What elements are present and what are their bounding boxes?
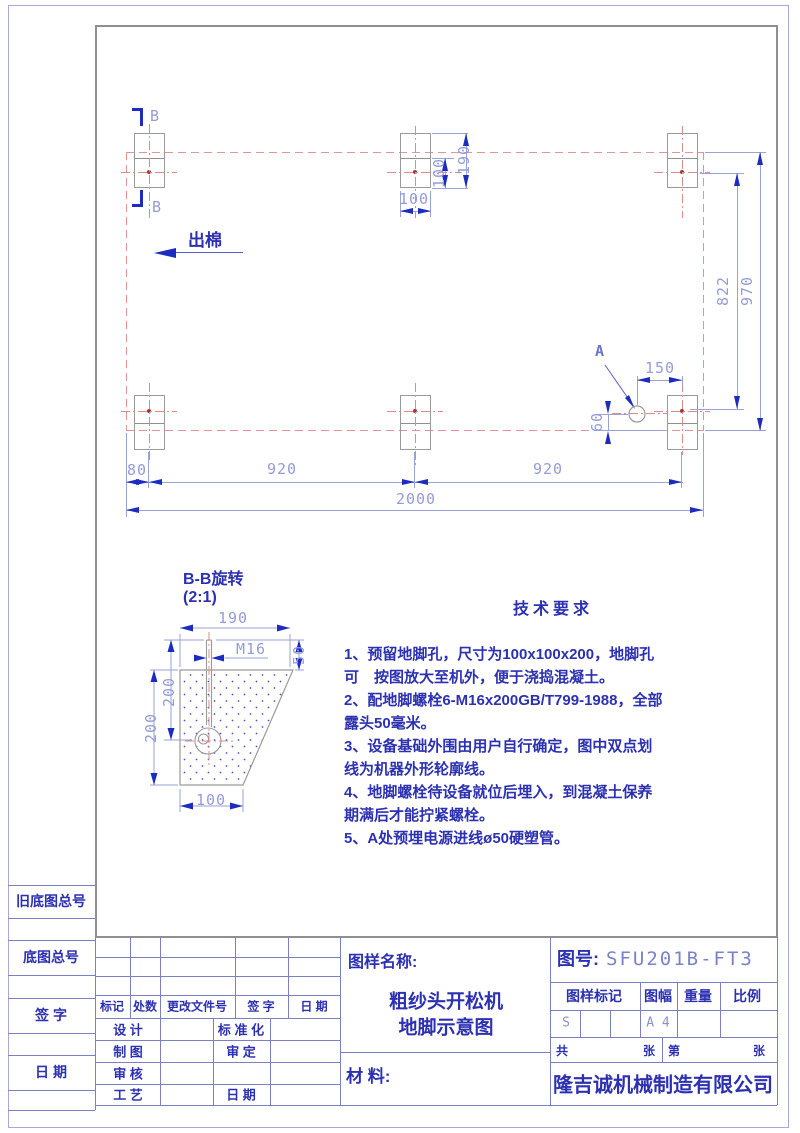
drawing-no: SFU201B-FT3 (606, 948, 754, 970)
dim-text: 100 (399, 190, 429, 208)
material-label: 材 料: (346, 1062, 390, 1087)
dim-line (608, 414, 609, 431)
dim-text: 80 (127, 461, 147, 479)
tech-line: 期满后才能拧紧螺栓。 (344, 804, 494, 825)
dim-arrow (126, 507, 139, 513)
tech-line: 2、配地脚螺栓6-M16x200GB/T799-1988，全部 (344, 689, 662, 710)
section-mark-icon (132, 204, 143, 207)
dim-line (126, 510, 704, 511)
dim-arrow (400, 208, 413, 214)
center-line (149, 383, 150, 460)
strip-line (8, 1110, 95, 1111)
engineering-drawing-page: B B 出棉 100 190 100 822 970 80 920 920 (0, 0, 800, 1133)
dim-arrow (757, 152, 763, 165)
strip-label-base-no: 底图总号 (23, 947, 79, 967)
titleblock-line (677, 982, 678, 1037)
sheet-size-value: A 4 (646, 1016, 669, 1031)
section-label-top: B (150, 107, 160, 125)
dim-line (760, 152, 761, 431)
tech-line: 可 按图放大至机外，便于浇捣混凝土。 (344, 666, 614, 687)
ext-line (703, 433, 704, 517)
table-line (213, 1018, 214, 1105)
dim-text: 200 (160, 677, 178, 707)
mark-value: S (562, 1016, 570, 1031)
product-name: 粗纱头开松机 (389, 987, 503, 1014)
dim-arrow (757, 418, 763, 431)
sheets-sheet1-label: 张 (643, 1042, 655, 1059)
dim-text: 150 (645, 359, 675, 377)
strip-line (8, 1090, 95, 1091)
titleblock-line (550, 1037, 777, 1038)
center-line (415, 383, 416, 465)
company-name: 隆吉诚机械制造有限公司 (553, 1069, 773, 1098)
dim-text: M16 (236, 640, 266, 658)
dim-arrow (418, 208, 431, 214)
sheets-no-label: 第 (668, 1042, 680, 1059)
rev-header-count: 处数 (133, 998, 157, 1015)
frame-bottom (95, 936, 778, 938)
titleblock-line (550, 937, 551, 1105)
titleblock-line (610, 1010, 611, 1037)
staff-process: 工 艺 (113, 1085, 143, 1104)
dim-arrow (637, 377, 650, 383)
machine-outline-right (703, 152, 704, 431)
table-line (95, 976, 340, 977)
titleblock-line (340, 1052, 550, 1053)
strip-line (8, 1033, 95, 1034)
strip-label-signature: 签 字 (35, 1005, 67, 1025)
dim-arrow (463, 175, 469, 188)
dim-text: 190 (455, 145, 473, 175)
center-line (387, 172, 462, 173)
staff-approval: 审 定 (226, 1042, 256, 1061)
drawing-name: 地脚示意图 (398, 1013, 493, 1040)
strip-line (8, 998, 95, 999)
detail-title: B-B旋转 (183, 565, 243, 589)
dim-arrow (734, 173, 740, 186)
rev-header-mark: 标记 (100, 998, 124, 1015)
col-header-size: 图幅 (644, 986, 672, 1006)
dim-text: 822 (714, 276, 732, 306)
tech-line: 露头50毫米。 (344, 712, 436, 733)
col-header-scale: 比例 (733, 986, 761, 1006)
staff-date: 日 期 (226, 1085, 256, 1104)
dim-arrow (402, 479, 415, 485)
table-line (235, 937, 236, 1018)
dim-text: 920 (267, 460, 297, 478)
dim-arrow (734, 396, 740, 409)
frame-right (776, 25, 778, 937)
ext-line (682, 376, 683, 386)
titleblock-line (580, 1010, 581, 1037)
rev-header-date: 日 期 (300, 998, 327, 1015)
section-mark-icon (140, 108, 143, 126)
drawing-no-label: 图号: (557, 945, 599, 971)
table-line (130, 937, 131, 1018)
titleblock-line (720, 982, 721, 1037)
tech-line: 1、预留地脚孔，尺寸为100x100x200，地脚孔 (344, 643, 654, 664)
table-line (95, 1105, 777, 1106)
dim-arrow (136, 479, 149, 485)
dim-text: 100 (196, 791, 226, 809)
center-line (682, 126, 683, 218)
table-line (95, 995, 340, 996)
dim-arrow (669, 479, 682, 485)
staff-drafting: 制 图 (113, 1042, 143, 1061)
sheets-total-label: 共 (556, 1042, 568, 1059)
dim-arrow (149, 479, 162, 485)
table-line (160, 937, 161, 1105)
dim-text: 60 (588, 412, 606, 432)
strip-line (8, 1055, 95, 1056)
strip-line (8, 918, 95, 919)
titleblock-line (662, 1037, 663, 1062)
drawing-name-label: 图样名称: (348, 948, 417, 972)
frame-left (95, 25, 97, 937)
col-header-mark: 图样标记 (566, 986, 622, 1006)
dim-text: 100 (430, 158, 448, 188)
ext-line (690, 409, 744, 410)
section-label-bottom: B (152, 198, 162, 216)
titleblock-line (777, 937, 778, 1105)
staff-review: 审 核 (113, 1064, 143, 1083)
ext-line (432, 188, 468, 189)
strip-line (8, 885, 95, 886)
dim-text: 50 (290, 645, 308, 665)
sheets-sheet2-label: 张 (753, 1042, 765, 1059)
staff-design: 设 计 (113, 1020, 143, 1039)
titleblock-line (640, 982, 641, 1037)
dim-text: 200 (142, 713, 160, 743)
strip-line (8, 940, 95, 941)
dim-text: 920 (533, 460, 563, 478)
machine-outline-left (126, 152, 127, 431)
outflow-label: 出棉 (188, 226, 222, 251)
col-header-weight: 重量 (684, 986, 712, 1006)
titleblock-line (550, 982, 777, 983)
dim-arrow (690, 507, 703, 513)
center-line (149, 124, 150, 218)
frame-top (95, 25, 778, 27)
concrete-foundation (180, 670, 293, 785)
outflow-arrow-icon (154, 248, 176, 258)
strip-label-date: 日 期 (35, 1062, 67, 1082)
rev-header-sign: 签 字 (247, 998, 274, 1015)
table-line (95, 957, 340, 958)
table-line (288, 937, 289, 1018)
dim-arrow (415, 479, 428, 485)
staff-standardization: 标 准 化 (218, 1020, 264, 1039)
dim-arrow (605, 431, 611, 444)
tech-line: 4、地脚螺栓待设备就位后埋入，到混凝土保养 (344, 781, 652, 802)
table-line (270, 1018, 271, 1105)
titleblock-line (550, 1062, 777, 1063)
strip-line (8, 975, 95, 976)
conduit-a-circle (629, 406, 645, 422)
dim-text: 2000 (396, 490, 436, 508)
a-label: A (595, 342, 605, 360)
center-line (682, 383, 683, 455)
dim-arrow (669, 377, 682, 383)
dim-text: 970 (738, 276, 756, 306)
tech-title: 技术要求 (513, 595, 593, 619)
titleblock-line (550, 1010, 777, 1011)
rev-header-docno: 更改文件号 (167, 998, 227, 1015)
strip-label-old-base-no: 旧底图总号 (16, 891, 86, 911)
tech-line: 5、A处预埋电源进线ø50硬塑管。 (344, 827, 569, 848)
dim-text: 190 (218, 609, 248, 627)
table-line (340, 937, 341, 1105)
tech-line: 线为机器外形轮廓线。 (344, 758, 494, 779)
detail-scale: (2:1) (183, 589, 217, 607)
tech-line: 3、设备基础外围由用户自行确定，图中双点划 (344, 735, 652, 756)
